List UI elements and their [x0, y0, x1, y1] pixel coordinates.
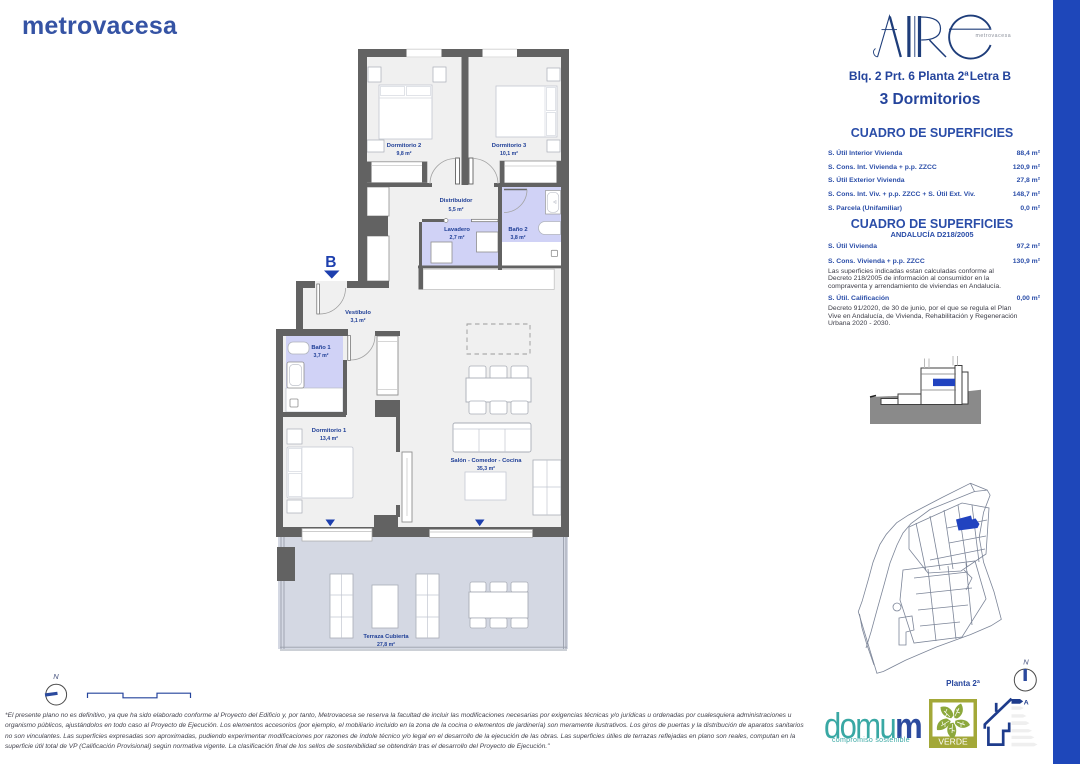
- svg-text:Distribuidor: Distribuidor: [440, 198, 474, 204]
- svg-text:3,1 m²: 3,1 m²: [351, 318, 366, 324]
- svg-text:9,8 m²: 9,8 m²: [397, 151, 412, 157]
- svg-text:Dormitorio 3: Dormitorio 3: [492, 143, 527, 149]
- svg-text:N: N: [1023, 658, 1029, 667]
- svg-text:A: A: [1024, 700, 1029, 707]
- svg-text:27,8 m²: 27,8 m²: [377, 642, 395, 648]
- svg-text:Terraza Cubierta: Terraza Cubierta: [363, 634, 409, 640]
- svg-text:10,1 m²: 10,1 m²: [500, 151, 518, 157]
- svg-text:3,8 m²: 3,8 m²: [511, 235, 526, 241]
- svg-text:Baño 1: Baño 1: [311, 345, 331, 351]
- svg-text:Dormitorio 2: Dormitorio 2: [387, 143, 421, 149]
- svg-text:N: N: [53, 672, 59, 681]
- svg-text:5,5 m²: 5,5 m²: [449, 207, 464, 213]
- svg-text:B: B: [325, 254, 336, 271]
- svg-text:Lavadero: Lavadero: [444, 227, 470, 233]
- svg-text:13,4 m²: 13,4 m²: [320, 436, 338, 442]
- svg-text:35,3 m²: 35,3 m²: [477, 466, 495, 472]
- svg-text:3,7 m²: 3,7 m²: [314, 353, 329, 359]
- svg-text:metrovacesa: metrovacesa: [976, 33, 1012, 39]
- svg-text:Salón - Comedor - Cocina: Salón - Comedor - Cocina: [451, 458, 523, 464]
- svg-text:2,7 m²: 2,7 m²: [450, 235, 465, 241]
- svg-text:Dormitorio 1: Dormitorio 1: [312, 428, 347, 434]
- svg-text:Baño 2: Baño 2: [508, 227, 527, 233]
- svg-text:Vestíbulo: Vestíbulo: [345, 310, 371, 316]
